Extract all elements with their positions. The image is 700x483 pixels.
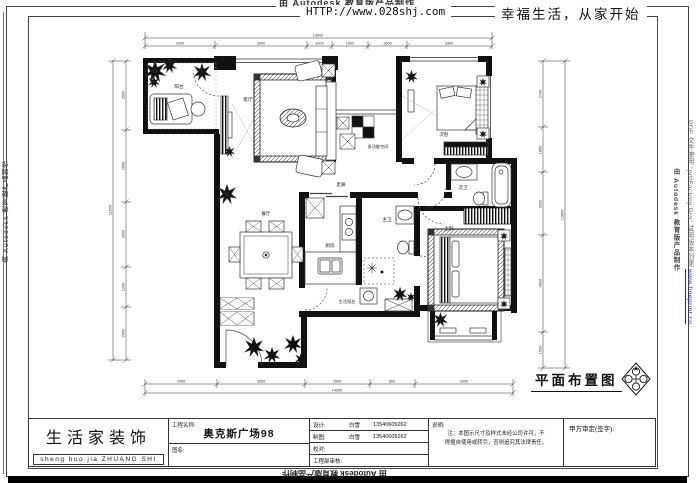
room-label-corridor: 走廊 (336, 181, 346, 188)
svg-text:2500: 2500 (333, 380, 341, 384)
drafter-row: 制图: 白雪 13540609262 (310, 431, 428, 443)
note-text: 注：本图示尺寸及样式未经公司许可，不 得擅自使用或转引，否则追究其法律责任。 (429, 430, 563, 448)
dim-right-total: 12650 (561, 210, 565, 221)
room-label-dining: 餐厅 (261, 210, 271, 217)
entry-plants (244, 287, 415, 366)
auditor-row: 工程部审核: (310, 455, 428, 466)
room-label-kitchen: 厨房 (325, 242, 335, 249)
dining-furniture (218, 185, 303, 325)
sign-label: 甲方审定(签字): (569, 423, 614, 433)
dim-left-total: 11900 (109, 205, 113, 215)
balcony-furniture (145, 59, 216, 129)
title-block: 生活家装饰 sheng huo jia ZHUANG SHI 工程名称: 奥克斯… (28, 418, 656, 467)
svg-text:3300: 3300 (445, 42, 453, 46)
drawing-name-label: 图名: (172, 446, 185, 454)
room-label-living: 客厅 (243, 96, 253, 103)
note-label: 说明: (432, 421, 445, 429)
svg-text:1850: 1850 (539, 146, 543, 154)
project-cell: 工程名称: 奥克斯广场98 图名: (168, 419, 309, 466)
svg-text:2600: 2600 (539, 200, 543, 208)
drawing-title-stamp: 平面布置图 (531, 369, 622, 392)
svg-text:1000: 1000 (315, 42, 323, 46)
svg-text:4000: 4000 (539, 279, 543, 287)
room-label-service-balcony: 生活阳台 (339, 298, 356, 305)
bedroom2-furniture (402, 71, 489, 155)
svg-text:3500: 3500 (257, 380, 265, 384)
svg-text:1500: 1500 (346, 42, 354, 46)
room-label-balcony: 阳台 (174, 83, 184, 90)
svg-text:3900: 3900 (460, 380, 468, 384)
kitchen-furniture (305, 198, 356, 284)
sign-cell: 甲方审定(签字): (563, 419, 655, 466)
north-arrow-icon (620, 361, 652, 397)
svg-text:2500: 2500 (122, 91, 126, 99)
room-label-master-bath: 主卫 (382, 216, 392, 222)
master-bedroom-furniture (428, 208, 511, 333)
svg-text:800: 800 (389, 380, 395, 384)
checker-row: 校对: (310, 443, 428, 455)
svg-text:3300: 3300 (122, 230, 126, 238)
svg-text:2900: 2900 (177, 380, 185, 384)
svg-text:1500: 1500 (383, 42, 391, 46)
svg-text:2000: 2000 (122, 329, 126, 337)
svg-text:2900: 2900 (122, 162, 126, 170)
svg-text:2700: 2700 (539, 90, 543, 98)
svg-text:1200: 1200 (122, 283, 126, 291)
dim-top-total: 13600 (313, 34, 324, 38)
dim-bottom-total: 14500 (332, 389, 343, 393)
svg-text:3500: 3500 (257, 42, 265, 46)
note-cell: 说明: 注：本图示尺寸及样式未经公司许可，不 得擅自使用或转引，否则追究其法律责… (428, 419, 563, 466)
svg-text:1500: 1500 (539, 346, 543, 354)
people-cell: 设计: 白雪 13540609262 制图: 白雪 13540609262 校对… (309, 419, 428, 466)
room-label-bath2: 次卫 (458, 184, 468, 191)
room-label-bedroom2: 次卧 (439, 131, 449, 138)
floor-plan-svg: 阳台 客厅 多功能空间 次卧 次卫 走廊 餐厅 厨房 生活阳台 主卫 主卧 13… (0, 0, 700, 483)
living-room-furniture (221, 60, 336, 177)
room-label-master-bedroom: 主卧 (444, 225, 454, 232)
svg-text:2900: 2900 (176, 42, 184, 46)
company-cell: 生活家装饰 sheng huo jia ZHUANG SHI (29, 419, 168, 466)
room-label-multi: 多功能空间 (368, 143, 389, 150)
company-name: 生活家装饰 (29, 424, 168, 448)
project-name: 奥克斯广场98 (169, 426, 309, 441)
project-name-row: 工程名称: 奥克斯广场98 (169, 419, 309, 444)
designer-row: 设计: 白雪 13540609262 (310, 419, 428, 431)
drawing-name-row: 图名: (169, 444, 309, 467)
company-pinyin: sheng huo jia ZHUANG SHI (33, 454, 164, 465)
